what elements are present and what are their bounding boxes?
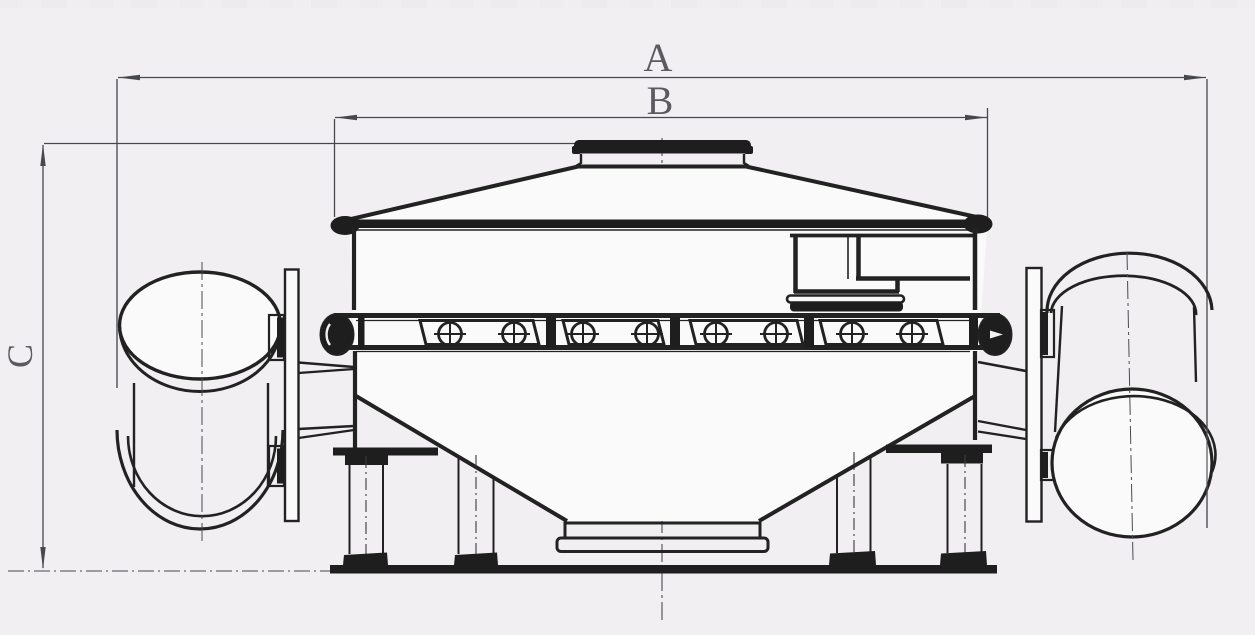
svg-text:B: B [647, 78, 674, 123]
svg-text:A: A [644, 35, 673, 80]
svg-text:C: C [0, 344, 40, 368]
